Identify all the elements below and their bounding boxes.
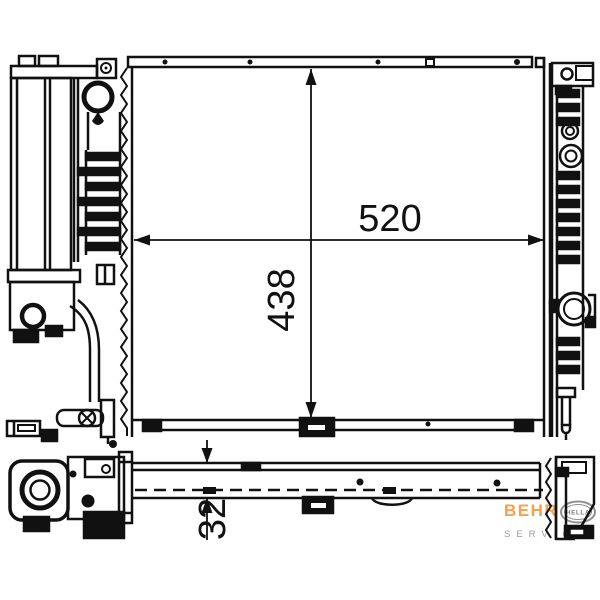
front-left-side-plate bbox=[121, 67, 132, 437]
screenshot-canvas: 520 438 BEHR HELLA SERVICE bbox=[0, 0, 600, 600]
front-side-bracket bbox=[97, 265, 114, 284]
front-top-header bbox=[128, 57, 544, 67]
radiator-technical-diagram: 520 438 BEHR HELLA SERVICE bbox=[0, 0, 600, 600]
dimension-height: 438 bbox=[261, 69, 317, 418]
front-left-ribs bbox=[78, 150, 120, 255]
front-right-tank bbox=[550, 63, 595, 440]
dimension-height-label: 438 bbox=[261, 268, 303, 331]
bottom-view: BEHR HELLA SERVICE bbox=[10, 440, 595, 540]
front-lower-hose bbox=[57, 300, 114, 444]
bottom-left-fitting bbox=[10, 440, 132, 538]
dimension-width-label: 520 bbox=[358, 198, 421, 240]
front-core-bottom bbox=[7, 418, 544, 441]
dimension-width: 520 bbox=[134, 198, 544, 246]
front-view: 520 438 bbox=[7, 56, 595, 444]
front-filler-neck bbox=[84, 83, 120, 150]
bottom-right-bracket bbox=[546, 457, 594, 539]
front-core-right-edge bbox=[544, 57, 550, 437]
dimension-thickness-label: 32 bbox=[192, 498, 234, 540]
